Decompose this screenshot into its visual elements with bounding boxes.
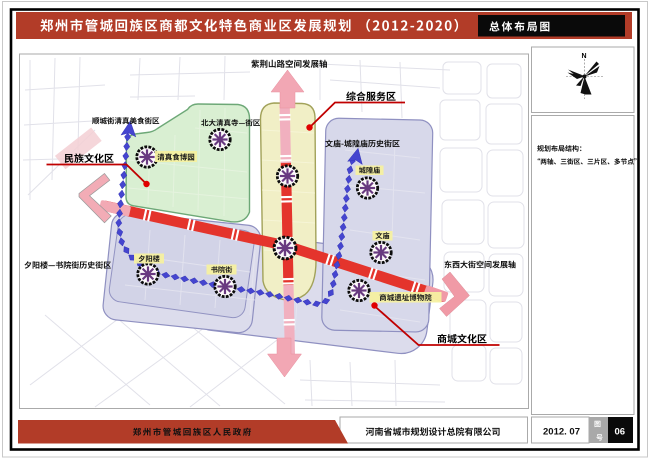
svg-text:N: N (582, 53, 587, 60)
svg-text:06: 06 (615, 427, 626, 438)
svg-text:2012. 07: 2012. 07 (543, 427, 580, 438)
